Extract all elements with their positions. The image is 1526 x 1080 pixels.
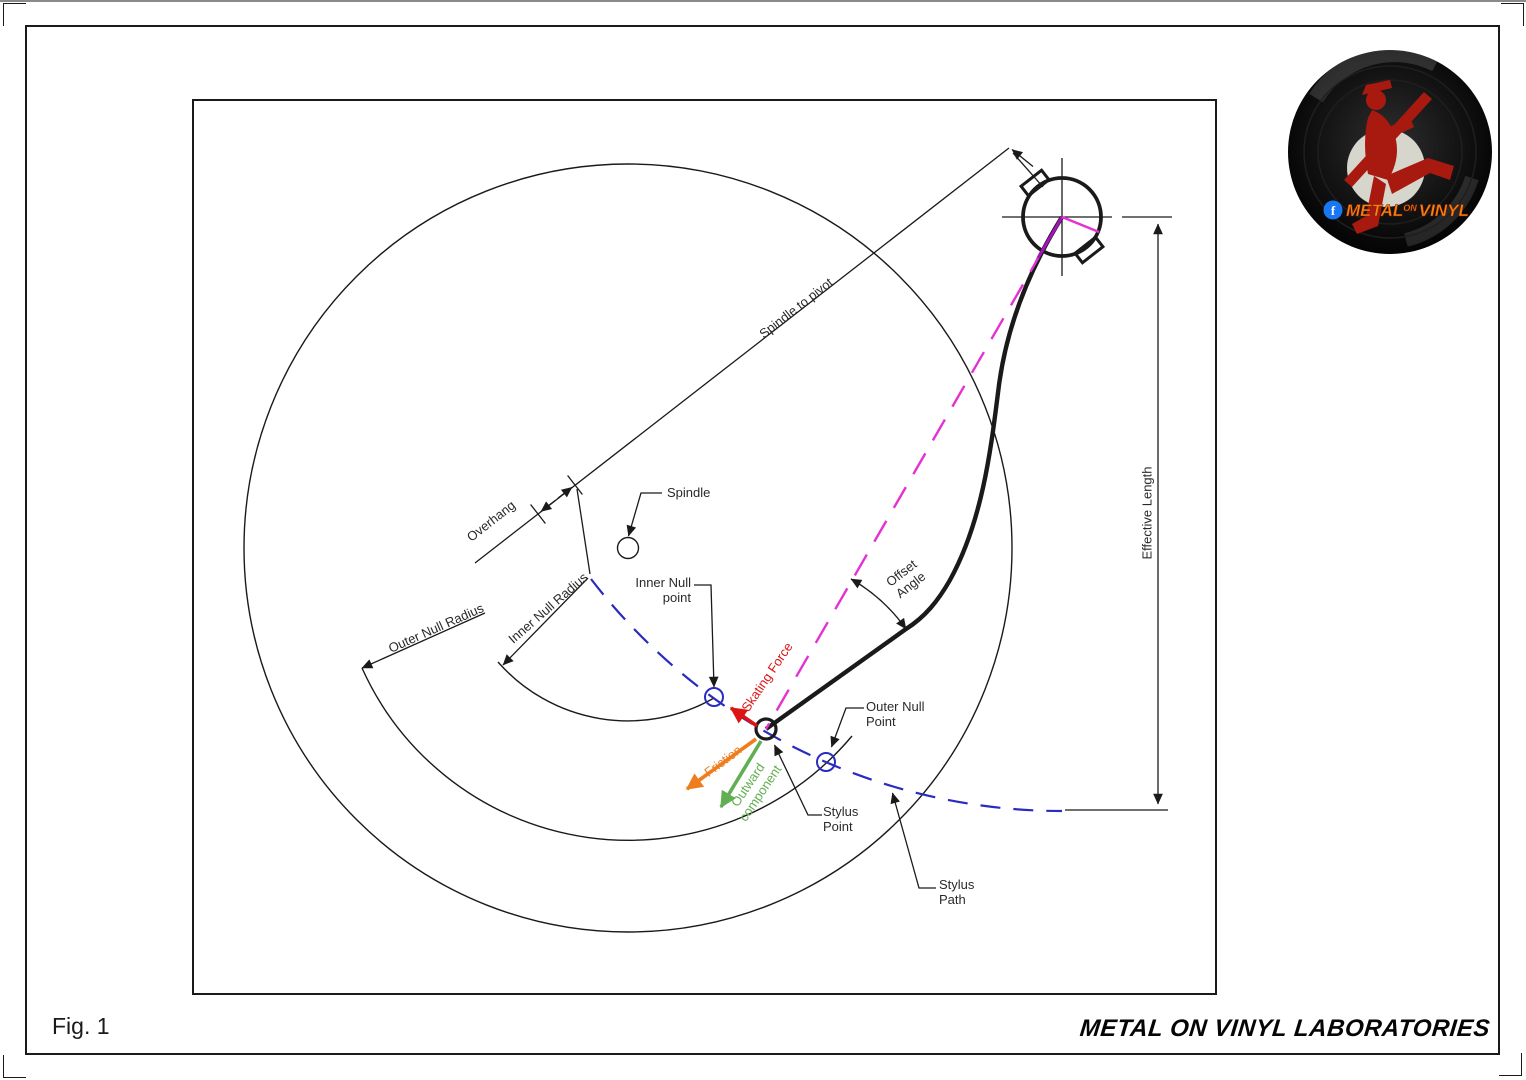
inner-null-radius-arc [498, 662, 714, 721]
drawing-sheet: Spindle to pivot Overhang Inner Null Rad… [0, 0, 1526, 1080]
overhang-arrow [541, 501, 555, 512]
inner-null-point-circle [705, 688, 723, 706]
headshell-tab [1075, 237, 1103, 262]
headshell-offset-segment [1062, 217, 1099, 232]
pivot-to-stylus-solid-segment [1038, 217, 1062, 258]
spindle-leader [629, 493, 663, 536]
inner-null-point-leader [694, 585, 714, 687]
stylus-path-arc [591, 579, 1062, 811]
stylus-path-leader [893, 793, 937, 888]
overhang-tick [568, 476, 583, 495]
effective-length-label: Effective Length [1139, 467, 1154, 560]
facebook-f: f [1331, 203, 1336, 218]
stylus-point-label: Stylus Point [823, 804, 887, 834]
stylus-path-label: Stylus Path [939, 877, 1003, 907]
spindle-circle [618, 538, 639, 559]
extension-to-stylus-path [577, 489, 590, 574]
overhang-tick [531, 505, 546, 524]
record-edge-circle [244, 164, 1012, 932]
overhang-arrow [558, 487, 572, 498]
spindle-label: Spindle [667, 485, 710, 500]
metal-on-vinyl-logo: f METALONVINYL [1286, 48, 1494, 256]
outer-null-point-label: Outer Null Point [866, 699, 930, 729]
headshell-tab [1021, 170, 1049, 195]
footer-brand: METAL ON VINYL LABORATORIES [1079, 1015, 1492, 1043]
figure-number: Fig. 1 [52, 1013, 110, 1040]
inner-null-point-label: Inner Null point [629, 575, 691, 605]
